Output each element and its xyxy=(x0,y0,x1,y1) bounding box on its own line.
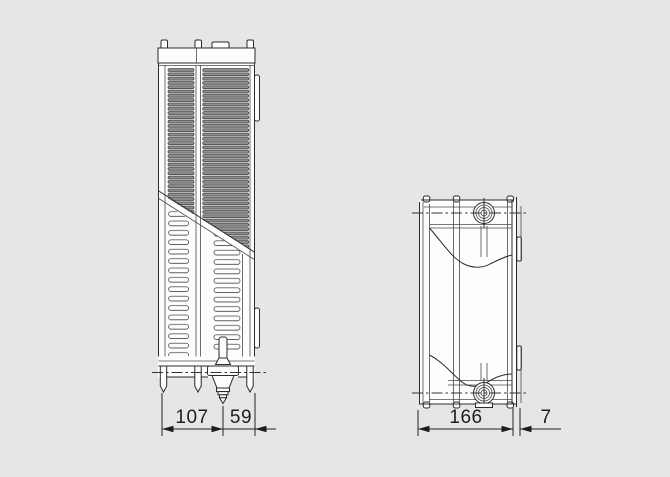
left-view-dimensions: 107 59 xyxy=(162,393,276,436)
dimension-label-depth: 107 xyxy=(175,407,208,428)
bottom-header xyxy=(158,357,255,378)
top-rail xyxy=(158,48,255,63)
foot xyxy=(160,366,166,392)
radiator-dimension-diagram: 107 59 166 7 xyxy=(0,0,670,477)
arrowhead-right-icon xyxy=(212,426,224,433)
left-side-view xyxy=(152,40,268,404)
foot xyxy=(247,366,253,392)
hanger-cap xyxy=(507,196,514,202)
right-view-dimensions: 166 7 xyxy=(418,407,561,436)
foot xyxy=(195,366,201,392)
arrowhead-left-icon xyxy=(255,426,267,433)
technical-drawing-canvas: 107 59 166 7 xyxy=(0,0,670,477)
dimension-label-valve-offset: 59 xyxy=(230,407,252,428)
hanger-cap xyxy=(507,402,514,408)
dimension-label-bracket-offset: 7 xyxy=(540,407,551,428)
arrowhead-left-icon xyxy=(520,426,532,433)
wall-bracket xyxy=(255,308,260,348)
dimension-label-total-depth: 166 xyxy=(449,407,482,428)
hanger-cap xyxy=(453,196,460,202)
arrowhead-left-icon xyxy=(418,426,430,433)
hanger-cap xyxy=(423,402,430,408)
hanger-cap xyxy=(423,196,430,202)
wall-bracket xyxy=(255,75,260,121)
arrowhead-right-icon xyxy=(502,426,514,433)
radiator-body xyxy=(419,200,517,404)
right-side-view xyxy=(412,196,526,408)
arrowhead-left-icon xyxy=(162,426,174,433)
